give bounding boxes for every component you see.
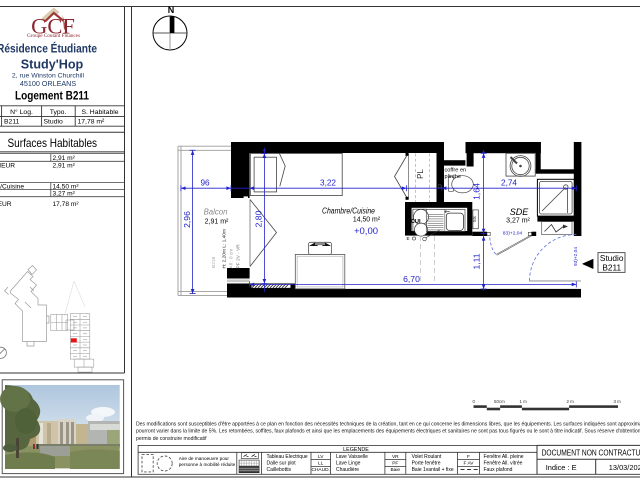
svg-text:DOCUMENT NON CONTRACTUEL: DOCUMENT NON CONTRACTUEL [542, 448, 640, 457]
svg-text:+0,00: +0,00 [354, 226, 378, 237]
svg-text:PF 2V - VR: PF 2V - VR [236, 244, 242, 269]
svg-text:S. Habitable: S. Habitable [81, 109, 118, 116]
svg-text:Tableau Electrique: Tableau Electrique [267, 454, 308, 460]
svg-text:Balcon: Balcon [204, 208, 228, 217]
svg-text:LV: LV [318, 454, 324, 460]
svg-text:H: 2,20m L: 1,40m: H: 2,20m L: 1,40m [222, 229, 228, 268]
svg-text:1,64: 1,64 [471, 183, 481, 200]
svg-text:45100 ORLEANS: 45100 ORLEANS [20, 79, 77, 88]
svg-text:Baie: Baie [390, 467, 400, 473]
svg-text:3 m: 3 m [614, 399, 622, 404]
svg-text:B211: B211 [602, 263, 621, 273]
svg-text:pourront varier dans la limite: pourront varier dans la limite de 5%. Le… [136, 429, 640, 435]
svg-text:CHAUD.: CHAUD. [312, 467, 330, 473]
svg-text:Fenêtre All. vitrée: Fenêtre All. vitrée [484, 461, 523, 467]
svg-text:17,78 m²: 17,78 m² [78, 119, 106, 126]
svg-text:personne à mobilité réduite: personne à mobilité réduite [179, 462, 236, 467]
svg-text:LEGENDE: LEGENDE [343, 447, 369, 453]
svg-text:SS: SS [472, 216, 477, 222]
svg-text:0: 0 [473, 399, 476, 404]
svg-text:TOTAL EXTERIEUR: TOTAL EXTERIEUR [0, 163, 15, 170]
svg-text:Lave Vaisselle: Lave Vaisselle [336, 454, 368, 460]
svg-text:CUI: CUI [411, 219, 421, 225]
svg-text:14,50 m²: 14,50 m² [53, 183, 80, 190]
svg-text:2,74: 2,74 [501, 178, 517, 187]
svg-text:Des modifications sont suscept: Des modifications sont susceptibles d'êt… [136, 422, 640, 428]
svg-text:Aire de manoeuvre pour: Aire de manoeuvre pour [179, 456, 230, 461]
svg-text:coffre en: coffre en [445, 168, 467, 174]
svg-text:3,22: 3,22 [320, 178, 336, 187]
svg-text:Surfaces Habitables: Surfaces Habitables [8, 136, 98, 150]
svg-text:2 m: 2 m [567, 399, 575, 404]
svg-text:F AV: F AV [463, 461, 474, 467]
svg-text:17,78 m²: 17,78 m² [53, 201, 80, 208]
svg-text:14,50 m²: 14,50 m² [353, 216, 381, 223]
svg-text:Baie 1vantail + fixe: Baie 1vantail + fixe [412, 467, 454, 473]
svg-text:PF: PF [392, 461, 398, 467]
svg-text:SDE: SDE [510, 207, 530, 217]
svg-text:Volet Roulant: Volet Roulant [412, 454, 442, 460]
svg-text:3,27 m²: 3,27 m² [53, 191, 76, 198]
svg-text:2,96: 2,96 [182, 211, 192, 228]
svg-text:Chaudière: Chaudière [336, 467, 359, 473]
svg-text:Porte fenêtre: Porte fenêtre [412, 461, 441, 467]
svg-text:Studio: Studio [44, 119, 63, 126]
svg-text:Groupe Coutant Finances: Groupe Coutant Finances [27, 34, 80, 39]
svg-text:B218: B218 [211, 256, 217, 268]
svg-text:Chambre/Cuisine: Chambre/Cuisine [322, 206, 376, 215]
svg-text:6,70: 6,70 [403, 274, 420, 284]
svg-text:Résidence Étudiante: Résidence Étudiante [0, 40, 97, 55]
svg-text:2,91 m²: 2,91 m² [205, 218, 229, 225]
svg-text:VR: VR [392, 454, 399, 460]
svg-text:F: F [467, 454, 470, 460]
svg-text:93)+2,04: 93)+2,04 [573, 247, 579, 266]
svg-text:2,91 m²: 2,91 m² [53, 155, 76, 162]
svg-text:Chambre/Cuisine: Chambre/Cuisine [0, 183, 24, 190]
svg-text:Study'Hop: Study'Hop [21, 57, 84, 71]
svg-text:Indice : E: Indice : E [546, 463, 577, 472]
svg-text:2,80: 2,80 [254, 210, 264, 227]
svg-text:TOTAL INTERIEUR: TOTAL INTERIEUR [0, 201, 12, 208]
svg-text:50cm: 50cm [494, 399, 505, 404]
svg-text:plinthe: plinthe [445, 174, 461, 180]
svg-text:All : 0 cm: All : 0 cm [229, 249, 235, 269]
svg-text:3,27 m²: 3,27 m² [506, 217, 530, 224]
svg-text:Lave Linge: Lave Linge [336, 461, 361, 467]
svg-text:Fenêtre All. pleine: Fenêtre All. pleine [484, 454, 524, 460]
svg-text:1 m: 1 m [520, 399, 528, 404]
svg-text:B211: B211 [4, 119, 20, 126]
svg-text:83)+2,04: 83)+2,04 [503, 230, 523, 236]
svg-text:Caillebottis: Caillebottis [267, 467, 292, 473]
svg-text:13/03/2024: 13/03/2024 [609, 463, 640, 472]
svg-text:E: E [407, 236, 410, 241]
svg-text:Typo.: Typo. [50, 109, 67, 116]
svg-text:N° Log.: N° Log. [10, 108, 33, 116]
svg-text:LL: LL [318, 461, 324, 467]
svg-text:Dalle sur plot: Dalle sur plot [267, 461, 297, 467]
svg-text:2,91 m²: 2,91 m² [53, 163, 76, 170]
svg-text:PL: PL [416, 169, 425, 179]
svg-text:Logement B211: Logement B211 [15, 91, 90, 103]
svg-text:N: N [168, 5, 175, 15]
svg-text:1,11: 1,11 [471, 253, 481, 269]
svg-text:Faux plafond: Faux plafond [484, 467, 513, 473]
svg-text:96: 96 [200, 178, 210, 187]
svg-text:permis de construire modificat: permis de construire modificatif [136, 436, 207, 442]
